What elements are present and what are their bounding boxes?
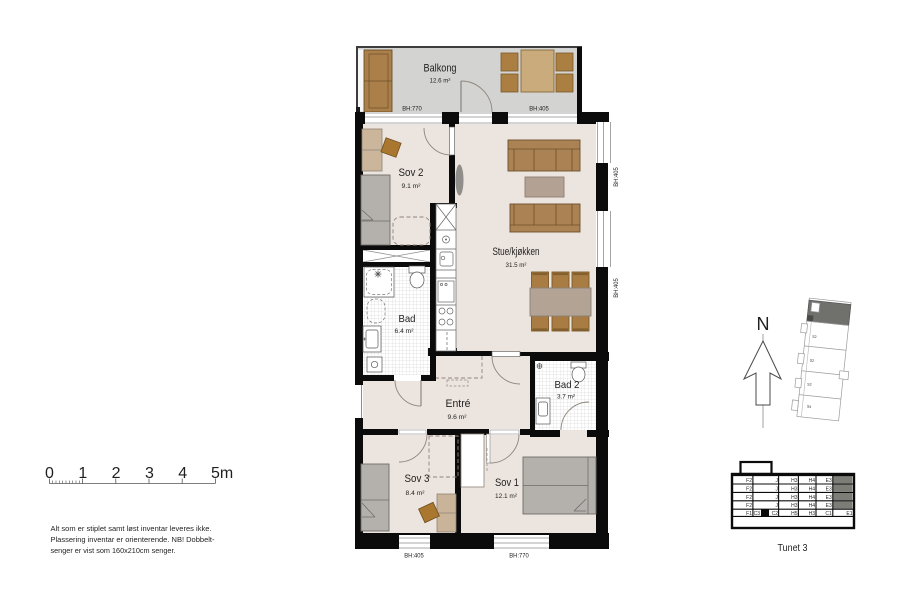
svg-text:S2: S2	[812, 335, 817, 339]
svg-text:F2: F2	[746, 495, 752, 501]
svg-text:C3: C3	[754, 511, 761, 517]
svg-text:5m: 5m	[211, 465, 233, 482]
svg-text:H4: H4	[809, 486, 816, 492]
svg-text:F2: F2	[746, 478, 752, 484]
svg-text:BH:405: BH:405	[613, 167, 620, 187]
svg-text:S2: S2	[807, 382, 812, 386]
svg-text:H3: H3	[791, 503, 798, 509]
svg-text:Sov 1: Sov 1	[495, 477, 519, 489]
svg-text:C2: C2	[772, 511, 779, 517]
svg-text:N: N	[757, 314, 770, 334]
svg-text:S4: S4	[807, 404, 812, 408]
svg-text:F1: F1	[746, 511, 752, 517]
svg-text:9.1 m²: 9.1 m²	[402, 183, 422, 190]
svg-text:C1: C1	[825, 511, 832, 517]
svg-text:Bad 2: Bad 2	[555, 379, 580, 391]
svg-text:Stue/kjøkken: Stue/kjøkken	[493, 246, 540, 258]
svg-text:senger er vist som 160x210cm s: senger er vist som 160x210cm senger.	[51, 546, 176, 555]
svg-text:E3: E3	[826, 478, 832, 484]
svg-text:E3: E3	[826, 495, 832, 501]
svg-text:BH:770: BH:770	[509, 553, 529, 560]
svg-text:BH:405: BH:405	[404, 553, 424, 560]
svg-text:4: 4	[178, 465, 187, 482]
svg-text:H4: H4	[809, 478, 816, 484]
svg-text:H3: H3	[791, 486, 798, 492]
svg-text:Balkong: Balkong	[424, 63, 457, 75]
svg-text:E1: E1	[846, 511, 852, 517]
svg-text:6.4 m²: 6.4 m²	[395, 328, 414, 335]
svg-text:3.7 m²: 3.7 m²	[557, 394, 575, 401]
svg-text:3: 3	[145, 465, 154, 482]
svg-text:31.5 m²: 31.5 m²	[506, 262, 528, 269]
svg-text:H4: H4	[809, 503, 816, 509]
svg-text:H3: H3	[791, 478, 798, 484]
svg-text:Sov 3: Sov 3	[405, 473, 430, 485]
svg-text:F2: F2	[746, 503, 752, 509]
svg-text:Alt som er stiplet samt løst i: Alt som er stiplet samt løst inventar le…	[51, 524, 212, 533]
svg-text:12.1 m²: 12.1 m²	[495, 493, 518, 500]
svg-text:F2: F2	[746, 486, 752, 492]
svg-text:S2: S2	[810, 359, 815, 363]
svg-text:Entré: Entré	[446, 398, 471, 410]
svg-text:E3: E3	[826, 486, 832, 492]
svg-text:BH:770: BH:770	[402, 106, 422, 113]
svg-text:Bad: Bad	[399, 313, 416, 325]
svg-text:Tunet 3: Tunet 3	[778, 542, 808, 554]
svg-text:BH:405: BH:405	[613, 278, 620, 298]
svg-text:Plassering inventar er oriente: Plassering inventar er orienterende. NB!…	[51, 535, 215, 544]
svg-text:9.6 m²: 9.6 m²	[448, 414, 468, 421]
svg-text:Sov 2: Sov 2	[399, 167, 424, 179]
svg-text:E3: E3	[826, 503, 832, 509]
svg-text:8.4 m²: 8.4 m²	[406, 490, 426, 497]
svg-text:12.6 m²: 12.6 m²	[430, 78, 452, 85]
svg-text:H3: H3	[809, 511, 816, 517]
svg-text:BH:405: BH:405	[529, 106, 549, 113]
svg-text:H3: H3	[791, 495, 798, 501]
svg-text:H5: H5	[791, 511, 798, 517]
svg-text:H4: H4	[809, 495, 816, 501]
